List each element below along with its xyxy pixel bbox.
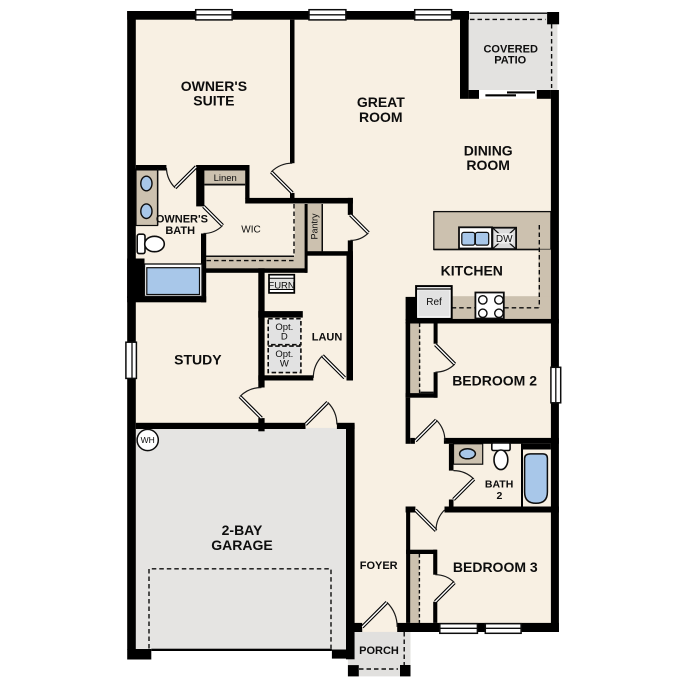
svg-text:BEDROOM 2: BEDROOM 2 — [452, 372, 537, 388]
svg-text:LAUN: LAUN — [312, 331, 343, 343]
svg-text:DINING: DINING — [464, 142, 513, 158]
svg-text:W: W — [280, 359, 289, 370]
svg-text:KITCHEN: KITCHEN — [441, 262, 503, 278]
svg-text:STUDY: STUDY — [174, 352, 222, 368]
svg-text:D: D — [281, 332, 288, 343]
svg-text:GREAT: GREAT — [357, 94, 405, 110]
svg-text:BATH: BATH — [165, 225, 195, 237]
svg-text:BATH: BATH — [485, 479, 513, 491]
svg-text:2-BAY: 2-BAY — [222, 522, 263, 538]
svg-text:Linen: Linen — [214, 173, 237, 184]
svg-text:GARAGE: GARAGE — [211, 537, 272, 553]
svg-text:Pantry: Pantry — [310, 213, 320, 240]
svg-text:SUITE: SUITE — [193, 93, 234, 109]
svg-text:DW: DW — [496, 234, 513, 245]
svg-text:2: 2 — [496, 490, 502, 502]
svg-text:WH: WH — [141, 435, 155, 445]
svg-text:OWNER'S: OWNER'S — [156, 214, 208, 226]
svg-text:COVERED: COVERED — [483, 43, 537, 55]
svg-text:BEDROOM 3: BEDROOM 3 — [453, 559, 538, 575]
svg-text:FURN: FURN — [268, 280, 295, 291]
svg-text:PATIO: PATIO — [494, 55, 526, 67]
svg-text:ROOM: ROOM — [359, 109, 403, 125]
svg-text:PORCH: PORCH — [359, 645, 399, 657]
svg-text:WIC: WIC — [241, 225, 260, 236]
svg-text:Ref: Ref — [426, 297, 442, 308]
svg-text:ROOM: ROOM — [466, 157, 510, 173]
svg-text:FOYER: FOYER — [360, 560, 398, 572]
